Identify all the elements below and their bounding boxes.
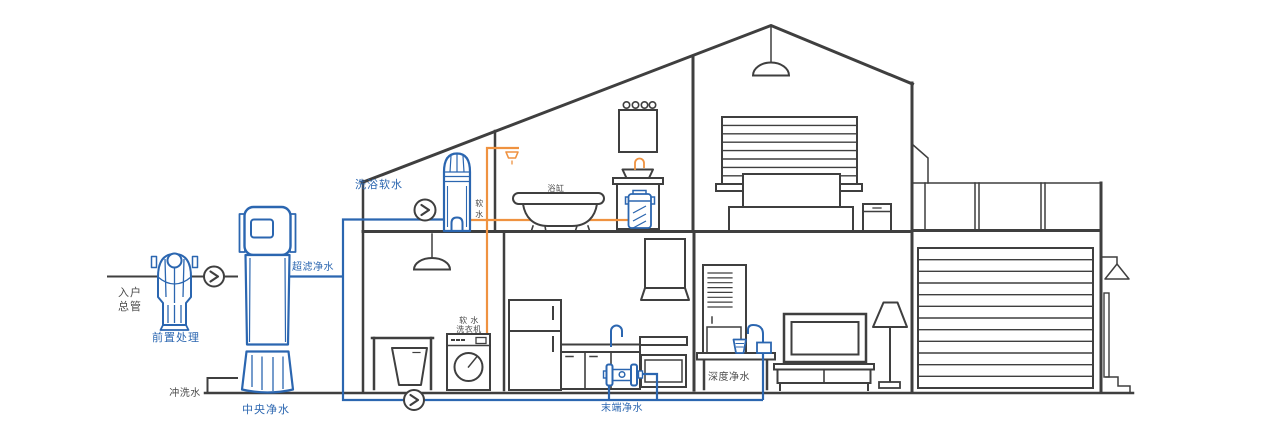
hood-flare — [641, 288, 689, 300]
laundry-basin — [392, 348, 427, 385]
terminal-purifier-gauge — [619, 372, 625, 378]
shower — [506, 152, 518, 165]
refrigerator — [509, 300, 561, 390]
rail-posts — [925, 183, 1045, 229]
stove — [640, 337, 687, 387]
label-deep-purifier: 深度净水 — [708, 370, 750, 383]
mirror-light-2 — [632, 102, 638, 108]
laundry-pendant-lamp — [414, 258, 450, 270]
deep-purifier-faucet-icon — [748, 325, 763, 342]
home-water-system-diagram: 入户 总管 前置处理 冲洗水 中央净水 超滤净水 洗浴软水 软 水 浴缸 软 水… — [0, 0, 1280, 434]
floor-lamp — [873, 303, 907, 389]
label-entry-main-line2: 总管 — [118, 299, 142, 313]
bathtub-bowl — [523, 204, 597, 226]
terminal-purifier-nub-right — [639, 371, 643, 378]
label-entry-main-line1: 入户 — [118, 285, 142, 299]
hood-duct — [645, 239, 685, 288]
label-ultrafiltration: 超滤净水 — [292, 260, 334, 273]
label-washer-line1: 软 水 — [459, 315, 479, 325]
cooktop — [640, 337, 687, 345]
bedroom-pendant-lamp — [753, 63, 789, 76]
label-bath-softener: 洗浴软水 — [355, 177, 403, 191]
label-terminal-purifier: 末端净水 — [601, 401, 643, 414]
entry-steps — [1106, 377, 1130, 393]
flow-indicator-entry-icon — [204, 267, 224, 287]
bath-softener-device — [444, 154, 470, 232]
tv-stand-legs — [780, 383, 868, 390]
tv-area — [774, 314, 874, 390]
label-bathtub: 浴缸 — [548, 183, 565, 193]
bathtub-rim — [513, 193, 604, 204]
vanity-mirror — [619, 110, 657, 152]
label-pre-treatment: 前置处理 — [152, 330, 200, 344]
terminal-purifier-cap-left — [607, 365, 613, 386]
vanity-faucet-icon — [635, 159, 644, 171]
bathtub — [513, 193, 604, 232]
central-purifier-device — [240, 207, 296, 393]
terminal-purifier-cap-right — [631, 365, 637, 386]
floor-lamp-base — [879, 382, 900, 388]
bed-headboard — [743, 174, 840, 207]
laundry-room — [372, 234, 490, 390]
vanity-sink-bowl — [623, 170, 654, 179]
bedroom — [716, 27, 891, 231]
vanity-purifier-body — [629, 194, 652, 228]
bed-base — [729, 207, 853, 231]
pre-treatment-ear-left — [152, 257, 157, 268]
kitchen-counter — [561, 345, 640, 353]
pre-treatment-head — [168, 254, 182, 268]
kitchen — [509, 239, 689, 390]
pre-treatment-device — [152, 254, 198, 331]
pipe-flush-water — [208, 378, 239, 393]
garage — [912, 144, 1130, 393]
floor-lamp-shade — [873, 303, 907, 328]
mirror-light-1 — [623, 102, 629, 108]
mirror-light-3 — [641, 102, 647, 108]
water-cup-icon — [734, 340, 747, 354]
vanity-purifier — [626, 191, 655, 229]
flow-indicator-attic-icon — [415, 200, 436, 221]
tv-screen — [792, 322, 859, 355]
range-hood — [641, 239, 689, 300]
central-purifier-skirt — [242, 352, 293, 393]
central-purifier-body — [246, 255, 290, 345]
label-soft-water-char2: 水 — [475, 209, 484, 219]
garage-pent-roof — [912, 144, 928, 183]
label-washer-line2: 洗衣机 — [456, 324, 482, 334]
label-soft-water-char1: 软 — [475, 198, 484, 208]
washing-machine — [447, 334, 490, 390]
diagram-canvas: 入户 总管 前置处理 冲洗水 中央净水 超滤净水 洗浴软水 软 水 浴缸 软 水… — [0, 0, 1280, 434]
deep-purifier-box — [757, 343, 771, 354]
flow-indicator-bottom-icon — [404, 390, 424, 410]
pre-treatment-ear-right — [193, 257, 198, 268]
outdoor-lamp-bracket — [1101, 257, 1117, 264]
downspout — [1104, 293, 1109, 377]
mirror-light-4 — [649, 102, 655, 108]
kitchen-cabinets — [561, 352, 640, 389]
label-central-purifier: 中央净水 — [242, 402, 290, 416]
outdoor-lamp-icon — [1105, 264, 1129, 279]
label-flush-water: 冲洗水 — [169, 386, 201, 399]
shower-head-icon — [506, 152, 518, 158]
